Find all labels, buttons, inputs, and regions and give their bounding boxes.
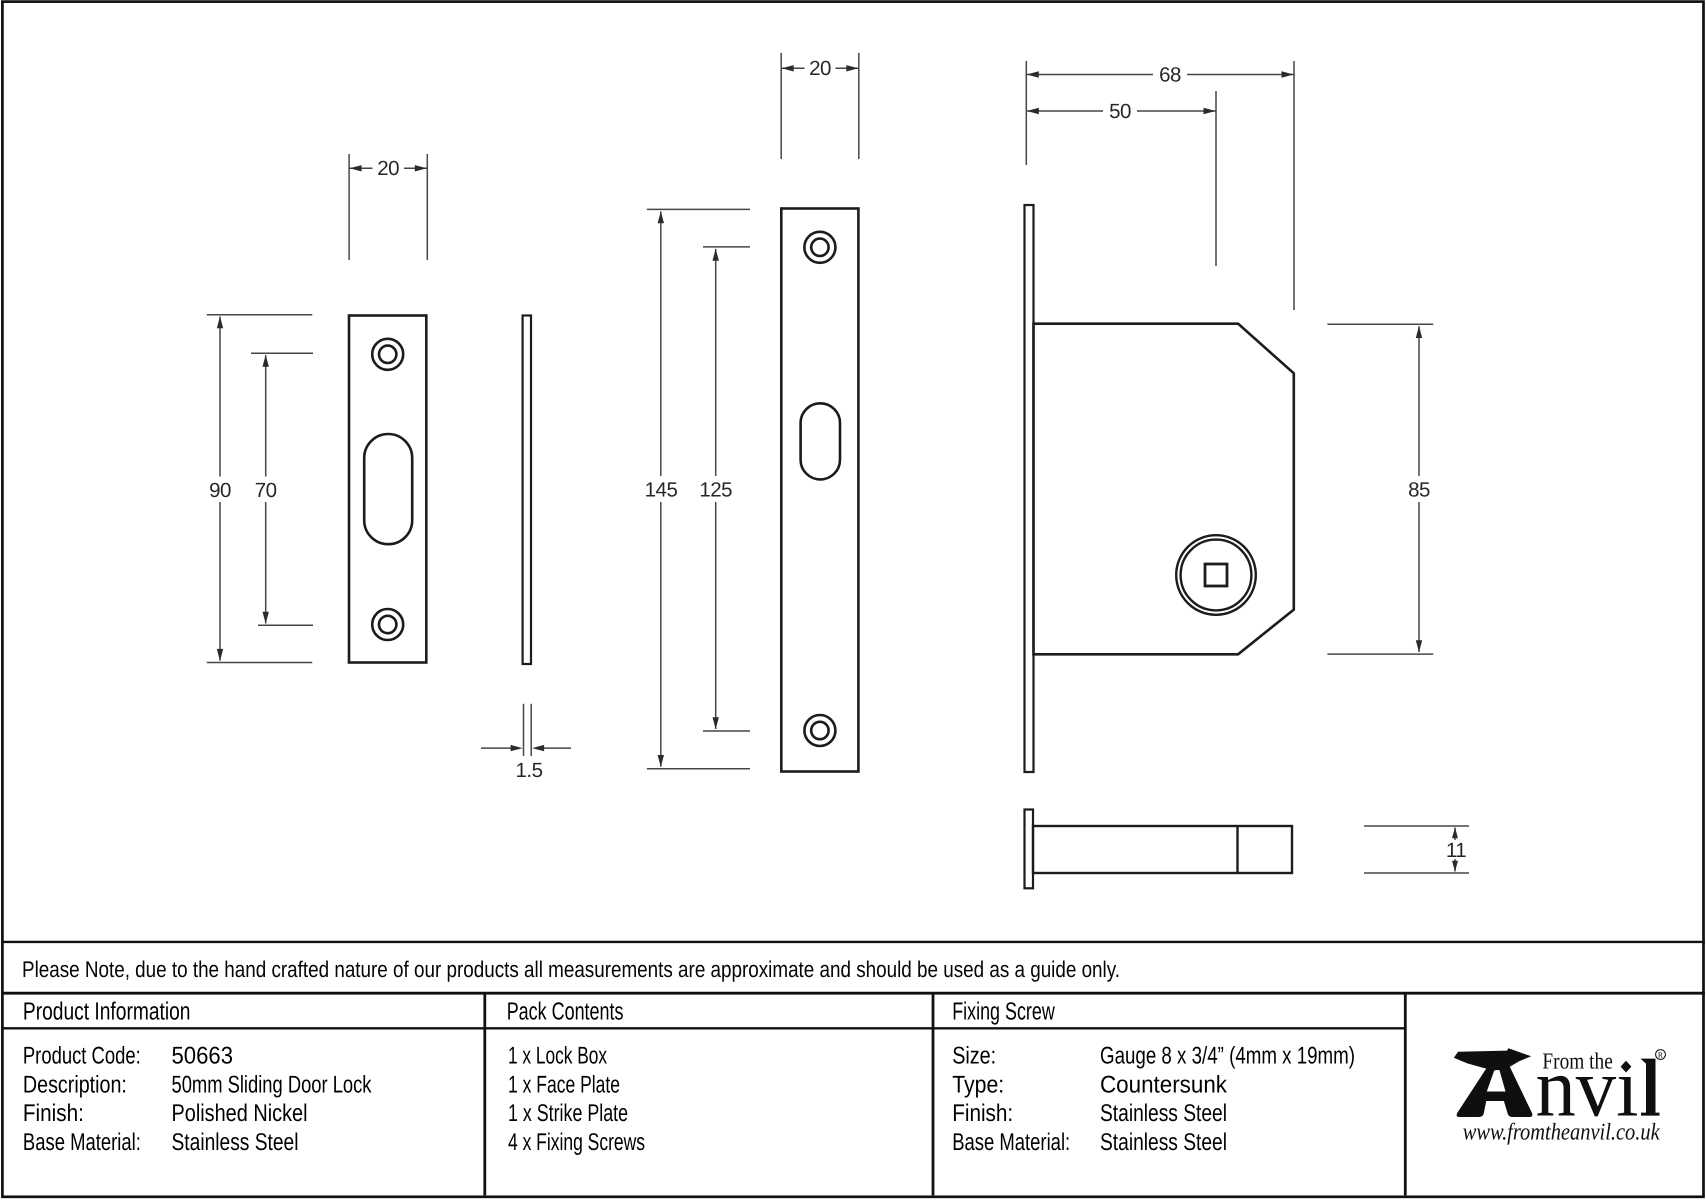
svg-text:Finish:: Finish: [952,1100,1013,1127]
svg-text:1.5: 1.5 [516,759,543,782]
svg-text:Stainless Steel: Stainless Steel [1100,1100,1227,1127]
svg-text:Stainless Steel: Stainless Steel [1100,1129,1227,1156]
svg-text:1 x Strike Plate: 1 x Strike Plate [508,1100,628,1127]
svg-text:Pack Contents: Pack Contents [507,999,624,1026]
svg-text:Countersunk: Countersunk [1100,1071,1228,1098]
svg-text:11: 11 [1446,839,1466,862]
svg-text:Description:: Description: [23,1071,127,1098]
svg-text:Finish:: Finish: [23,1100,84,1127]
svg-text:Base Material:: Base Material: [23,1129,141,1156]
svg-text:50663: 50663 [172,1042,234,1069]
svg-text:145: 145 [645,479,678,502]
svg-text:Base Material:: Base Material: [952,1129,1070,1156]
svg-text:Polished Nickel: Polished Nickel [172,1100,308,1127]
svg-text:R: R [1658,1051,1664,1060]
svg-text:Fixing Screw: Fixing Screw [952,999,1055,1026]
svg-text:Product Information: Product Information [23,999,191,1026]
svg-text:Gauge 8 x 3/4” (4mm x 19mm): Gauge 8 x 3/4” (4mm x 19mm) [1100,1042,1355,1069]
svg-text:20: 20 [377,157,399,180]
svg-text:Type:: Type: [952,1071,1004,1098]
svg-text:90: 90 [209,479,231,502]
svg-text:1 x Face Plate: 1 x Face Plate [508,1071,620,1098]
svg-text:20: 20 [809,57,831,80]
svg-text:85: 85 [1408,478,1430,501]
svg-text:Stainless Steel: Stainless Steel [172,1129,299,1156]
svg-text:Product Code:: Product Code: [23,1042,141,1069]
svg-text:Size:: Size: [952,1042,996,1069]
svg-text:www.fromtheanvil.co.uk: www.fromtheanvil.co.uk [1463,1120,1660,1146]
svg-text:125: 125 [699,479,732,502]
svg-text:4 x Fixing Screws: 4 x Fixing Screws [508,1129,645,1156]
svg-text:Please Note, due to the hand c: Please Note, due to the hand crafted nat… [22,956,1120,982]
svg-text:50mm Sliding Door Lock: 50mm Sliding Door Lock [172,1071,373,1098]
svg-text:50: 50 [1109,100,1131,123]
svg-text:1 x Lock Box: 1 x Lock Box [508,1042,607,1069]
svg-text:70: 70 [255,479,277,502]
svg-text:68: 68 [1159,63,1181,86]
